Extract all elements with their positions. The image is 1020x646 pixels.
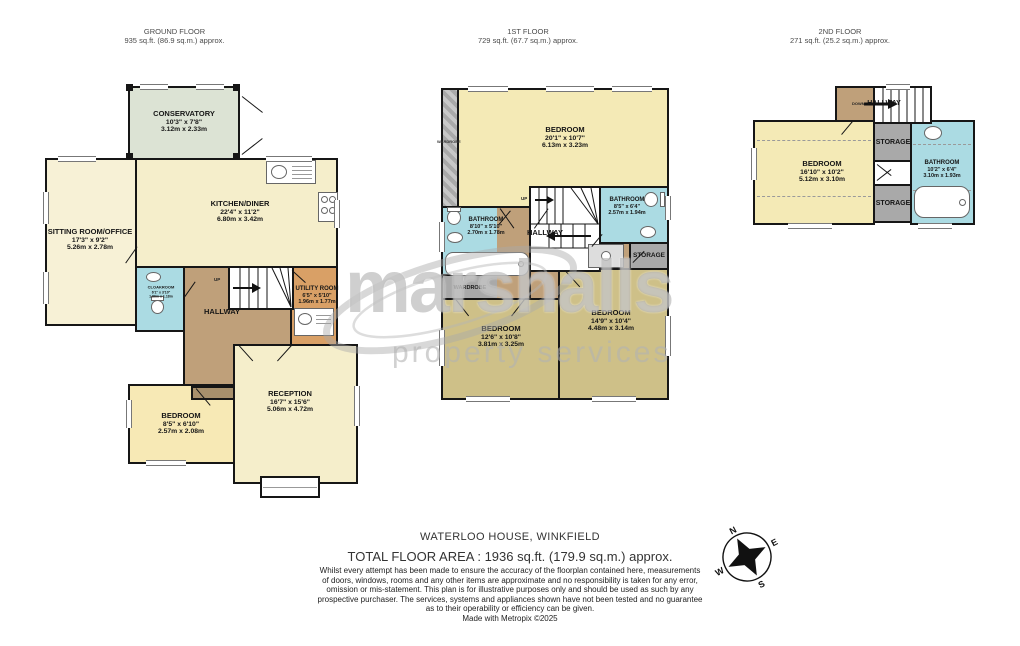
disclaimer-line: prospective purchaser. The services, sys… <box>318 595 703 604</box>
watermark-brand: marshalls <box>345 244 673 329</box>
up-label-ground: UP <box>214 277 220 282</box>
label-bedroom-main-first: BEDROOM 20'1" x 10'7" 6.13m x 3.23m <box>542 126 588 150</box>
window <box>354 386 360 426</box>
property-name: WATERLOO HOUSE, WINKFIELD <box>0 531 1020 543</box>
second-floor-title: 2ND FLOOR <box>819 27 862 36</box>
pillar <box>233 84 240 91</box>
window <box>43 272 49 304</box>
basin-icon <box>640 226 656 238</box>
window <box>592 396 636 402</box>
window <box>665 196 671 220</box>
total-floor-area: TOTAL FLOOR AREA : 1936 sq.ft. (179.9 sq… <box>0 549 1020 564</box>
label-hallway-second: HALLWAY <box>867 100 901 109</box>
disclaimer-line: omission or mis-statement. This plan is … <box>326 585 693 594</box>
ground-floor-title: GROUND FLOOR <box>144 27 205 36</box>
eaves-dash <box>757 196 871 197</box>
svg-text:W: W <box>714 565 727 578</box>
ground-floor-area: 935 sq.ft. (86.9 sq.m.) approx. <box>124 36 224 45</box>
porch <box>191 386 235 400</box>
window <box>612 86 652 92</box>
svg-text:E: E <box>769 537 779 549</box>
compass-icon: N E S W <box>710 520 784 594</box>
window <box>140 84 168 90</box>
first-floor-area: 729 sq.ft. (67.7 sq.m.) approx. <box>478 36 578 45</box>
label-reception: RECEPTION 16'7" x 15'6" 5.06m x 4.72m <box>267 390 313 414</box>
label-bathroom-right-first: BATHROOM 8'5" x 6'4" 2.57m x 1.94m <box>608 197 645 217</box>
pillar <box>126 84 133 91</box>
pillar <box>126 153 133 160</box>
label-cloakroom: CLOAKROOM 6'1" x 3'10" 1.86m x 1.18m <box>148 286 175 299</box>
label-wardrobe-side: WARDROBE <box>437 139 461 144</box>
label-storage-bottom-second: STORAGE <box>876 200 911 209</box>
door-line <box>242 96 263 113</box>
window <box>546 86 594 92</box>
first-floor-title: 1ST FLOOR <box>507 27 549 36</box>
up-label-first: UP <box>521 196 527 201</box>
svg-text:S: S <box>757 579 767 591</box>
eaves-dash <box>757 140 871 141</box>
window <box>468 86 508 92</box>
toilet-icon <box>447 210 461 225</box>
second-floor-header: 2ND FLOOR 271 sq.ft. (25.2 sq.m.) approx… <box>740 27 940 45</box>
disclaimer-line: as to their operability or efficiency ca… <box>426 604 594 613</box>
window <box>126 400 132 428</box>
cloakroom-toilet-icon <box>151 300 164 314</box>
label-kitchen-diner: KITCHEN/DINER 22'4" x 11'2" 6.80m x 3.42… <box>211 200 270 224</box>
label-sitting-room: SITTING ROOM/OFFICE 17'3" x 9'2" 5.26m x… <box>48 228 133 252</box>
label-conservatory: CONSERVATORY 10'3" x 7'8" 3.12m x 2.33m <box>153 110 215 134</box>
floorplan-canvas: GROUND FLOOR 935 sq.ft. (86.9 sq.m.) app… <box>0 0 1020 646</box>
wardrobe-strip-first <box>441 88 459 210</box>
toilet-icon <box>644 192 658 207</box>
window <box>58 156 96 162</box>
label-bathroom-left-first: BATHROOM 8'10" x 5'10" 2.70m x 1.78m <box>467 217 504 237</box>
label-bedroom-second: BEDROOM 16'10" x 10'2" 5.12m x 3.10m <box>799 160 845 184</box>
window <box>43 192 49 224</box>
disclaimer: Whilst every attempt has been made to en… <box>0 566 1020 624</box>
door-line <box>242 138 263 155</box>
window <box>334 200 340 228</box>
eaves-dash <box>913 144 971 145</box>
made-with: Made with Metropix ©2025 <box>462 614 557 623</box>
first-floor-header: 1ST FLOOR 729 sq.ft. (67.7 sq.m.) approx… <box>428 27 628 45</box>
window <box>466 396 510 402</box>
cloakroom-basin-icon <box>146 272 161 282</box>
cistern-icon <box>447 207 461 212</box>
window <box>146 460 186 466</box>
second-floor-area: 271 sq.ft. (25.2 sq.m.) approx. <box>790 36 890 45</box>
disclaimer-line: Whilst every attempt has been made to en… <box>320 566 701 575</box>
watermark-tagline: property services <box>392 336 671 370</box>
window <box>788 223 832 229</box>
label-bathroom-second: BATHROOM 10'2" x 6'4" 3.10m x 1.93m <box>923 160 960 180</box>
disclaimer-line: of doors, windows, rooms and any other i… <box>322 576 698 585</box>
bay-window-line <box>263 487 317 488</box>
window <box>751 148 757 180</box>
basin-icon <box>924 126 942 140</box>
window <box>196 84 224 90</box>
label-hallway-ground: HALLWAY <box>204 308 240 317</box>
window <box>886 84 910 90</box>
window <box>266 156 312 162</box>
window <box>918 223 952 229</box>
ground-floor-header: GROUND FLOOR 935 sq.ft. (86.9 sq.m.) app… <box>92 27 257 45</box>
bathtub-icon <box>914 186 970 218</box>
kitchen-sink-icon <box>266 160 316 184</box>
stairs-ground <box>228 266 294 310</box>
pillar <box>233 153 240 160</box>
down-label-second: DOWN <box>852 101 865 106</box>
label-bedroom-ground: BEDROOM 8'5" x 6'10" 2.57m x 2.08m <box>158 412 204 436</box>
label-storage-top-second: STORAGE <box>876 139 911 148</box>
